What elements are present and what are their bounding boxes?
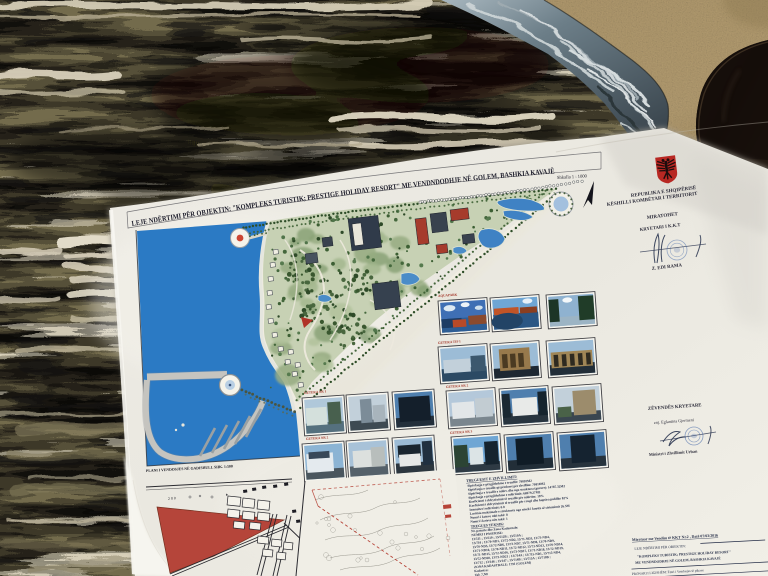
svg-text:Vol: 7,N8: Vol: 7,N8 <box>474 572 488 576</box>
svg-text:♦: ♦ <box>226 492 228 497</box>
svg-text:2 0 0: 2 0 0 <box>168 495 176 501</box>
